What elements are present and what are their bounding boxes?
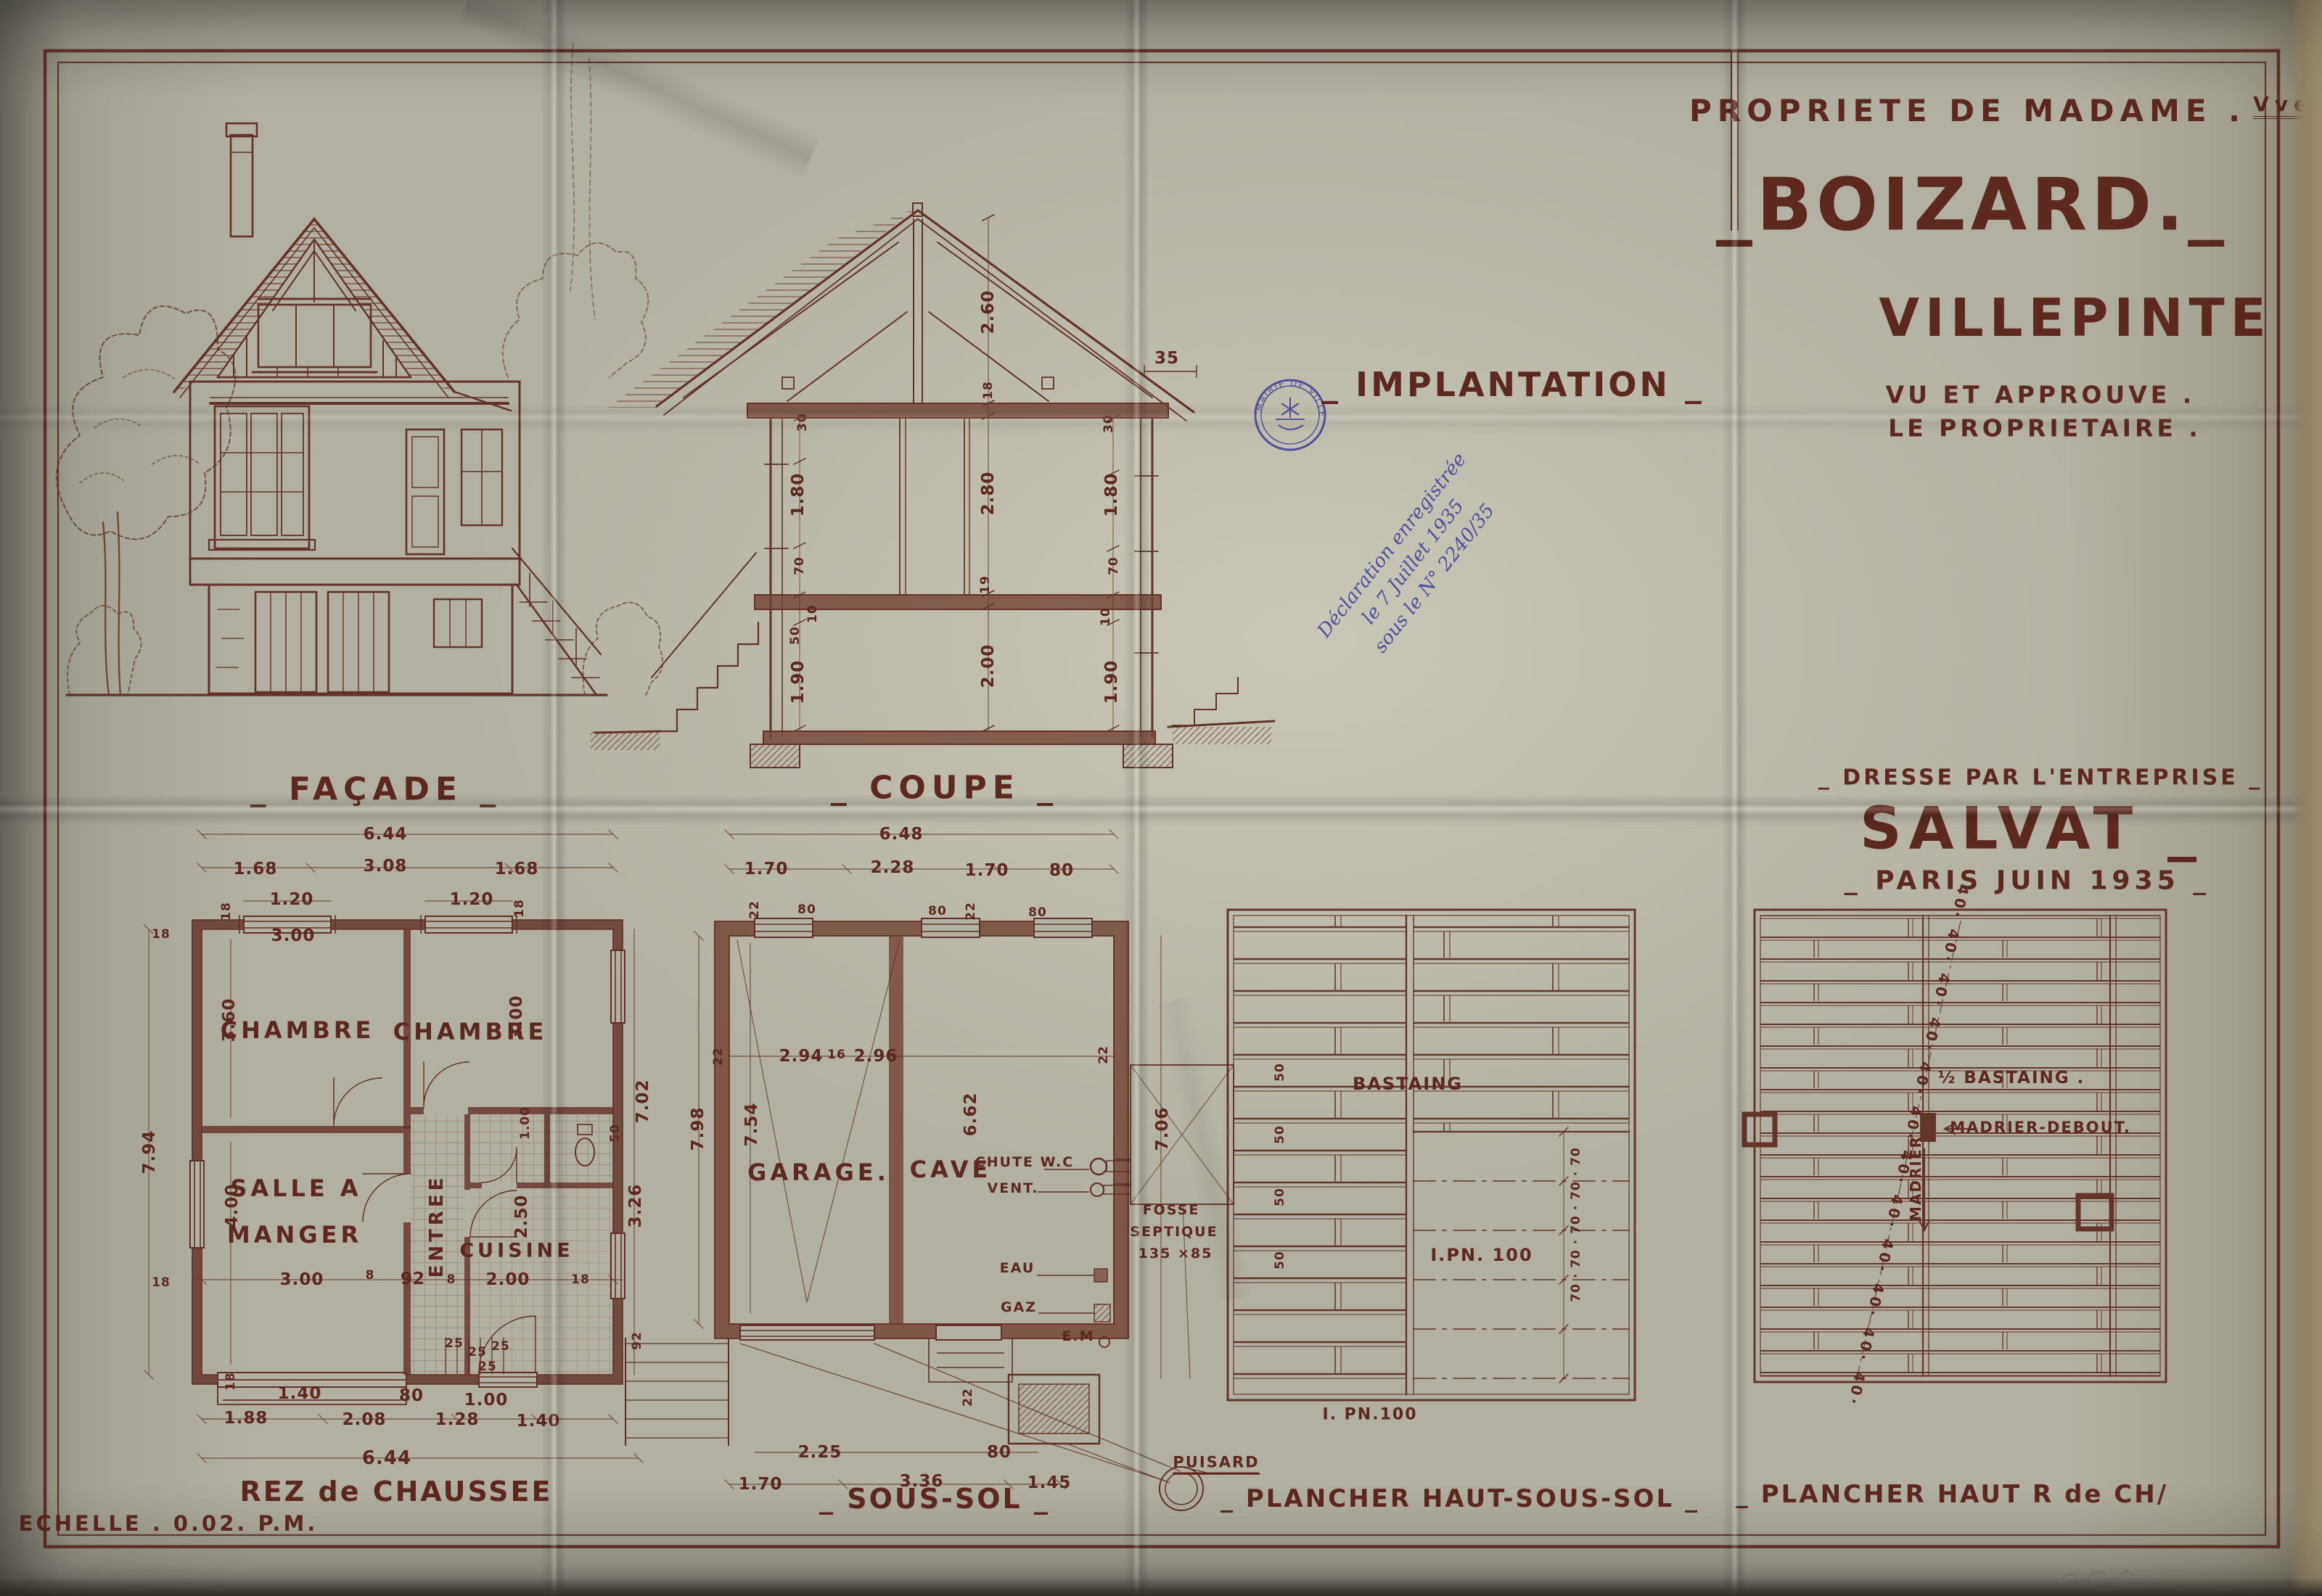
dim-label: 1.90	[1102, 660, 1121, 704]
room-label-cuisine: CUISINE	[459, 1240, 573, 1262]
dim-label: 1.70	[744, 860, 789, 879]
dim-label: 18	[512, 899, 527, 918]
dim-label: 18	[152, 1275, 171, 1290]
dim-label: 1.80	[1102, 473, 1121, 517]
anno-em: E.M	[1062, 1328, 1094, 1344]
room-label-garage: GARAGE.	[747, 1159, 890, 1186]
dim-label: 3.00	[507, 995, 526, 1040]
dim-label: 18	[223, 1372, 238, 1391]
anno-eau: EAU	[1000, 1260, 1035, 1276]
anno-chute-wc: CHUTE W.C	[975, 1154, 1074, 1170]
dim-label: 50	[1273, 1188, 1287, 1206]
dim-label: 30	[1101, 414, 1116, 433]
dim-label: 18	[981, 381, 996, 400]
puisard-label: PUISARD	[1173, 1454, 1259, 1475]
room-label-salle2: MANGER	[227, 1221, 362, 1249]
dim-label: 1.80	[789, 473, 808, 517]
firm-name: SALVAT _	[1860, 795, 2204, 863]
dim-label: 2.50	[512, 1195, 531, 1239]
dim-label: 7.54	[742, 1103, 761, 1147]
dim-label: 3.08	[364, 857, 408, 876]
dim-label: 2.08	[342, 1410, 387, 1429]
dim-label: 92	[630, 1331, 644, 1350]
anno-ipn-center: I.PN. 100	[1430, 1245, 1533, 1265]
dim-label: 3.00	[280, 1270, 324, 1289]
room-label-entree: ENTREE	[426, 1175, 448, 1278]
dim-label: 3.36	[900, 1472, 944, 1491]
dim-label: 1.00	[464, 1391, 509, 1410]
scale-note: ECHELLE . 0.02. P.M.	[19, 1511, 319, 1536]
dim-label: 80	[797, 902, 816, 917]
firm-line1: _ DRESSE PAR L'ENTREPRISE _	[1818, 765, 2263, 791]
anno-half-bastaing: ½ BASTAING .	[1938, 1069, 2085, 1087]
dim-label: 80	[1049, 861, 1074, 880]
property-title-line1: PROPRIETE DE MADAME .Vve	[1689, 92, 2313, 128]
sheet-edge-bottom	[0, 1577, 2322, 1596]
dim-label: 50	[788, 626, 803, 645]
dim-label: 50	[608, 1124, 623, 1143]
dim-label: 22	[961, 1388, 975, 1407]
rez-title: REZ de CHAUSSEE	[240, 1476, 553, 1507]
dim-label: 1.70	[965, 861, 1009, 880]
blueprint-sheet: MAIRIE DE VILLEPINTE PROPRIETE DE MADAME…	[0, 0, 2322, 1596]
dim-label: 18	[152, 927, 171, 942]
dim-label: 18	[571, 1272, 590, 1287]
dim-label: 22	[964, 902, 978, 921]
approval-line2: LE PROPRIETAIRE .	[1888, 414, 2202, 443]
dim-label: 80	[399, 1386, 424, 1405]
room-label-chambre1: CHAMBRE	[221, 1016, 375, 1044]
plancher1-title: _ PLANCHER HAUT-SOUS-SOL _	[1221, 1484, 1699, 1513]
dim-label: 10	[1099, 607, 1113, 626]
anno-fosse2: SEPTIQUE	[1130, 1224, 1218, 1240]
dim-label: 3.00	[271, 926, 316, 945]
property-city: VILLEPINTE	[1879, 287, 2272, 348]
dim-label: 4.00	[223, 1184, 242, 1228]
dim-label: 30	[795, 413, 810, 432]
firm-date: _ PARIS JUIN 1935 _	[1845, 866, 2210, 896]
dim-label: 92	[401, 1270, 425, 1288]
dim-label: 7.06	[1153, 1107, 1172, 1151]
dim-label: 16	[827, 1048, 846, 1062]
dim-label: 1.88	[224, 1409, 268, 1428]
dim-label: 3.26	[626, 1184, 645, 1228]
dim-label: 2.96	[854, 1047, 898, 1066]
dim-label: 7.02	[633, 1079, 652, 1124]
dim-label: 2.25	[798, 1443, 842, 1462]
dim-label: 1.70	[739, 1475, 783, 1494]
property-name: _BOIZARD._	[1716, 163, 2228, 247]
dim-label: 1.40	[517, 1412, 561, 1431]
dim-label: 6.44	[362, 1447, 411, 1469]
dim-label: 8	[366, 1268, 375, 1283]
dim-label: 7.98	[689, 1107, 707, 1151]
dim-label: 3.60	[220, 998, 239, 1042]
dim-label: 2.00	[979, 644, 998, 688]
note-line2: le 7 Juillet 1935	[1333, 464, 1494, 660]
coupe-title: _ COUPE _	[831, 770, 1059, 807]
dim-label: 70	[1107, 556, 1121, 575]
dim-label: 7.94	[140, 1130, 159, 1175]
dim-label: 2.28	[871, 858, 915, 877]
dim-label: 2.00	[486, 1270, 530, 1289]
dim-label: 1.28	[435, 1410, 480, 1429]
dim-label: 50	[1273, 1063, 1287, 1082]
dim-label: 1.68	[234, 860, 278, 879]
dim-label: 2.94	[779, 1047, 824, 1066]
dim-label: 25	[478, 1360, 497, 1374]
dim-label: 1.68	[495, 860, 539, 879]
dim-label: 1.40	[278, 1384, 322, 1403]
registration-note: Déclaration enregistrée le 7 Juillet 193…	[1312, 448, 1516, 677]
dim-label: 50	[1273, 1251, 1287, 1270]
dim-label: 25	[468, 1345, 487, 1360]
dim-label: 25	[491, 1339, 510, 1354]
dim-label: 22	[711, 1047, 726, 1066]
anno-vent: VENT.	[988, 1180, 1039, 1196]
anno-madrier-debout: MADRIER-DEBOUT.	[1950, 1119, 2131, 1136]
dim-label: 80	[1028, 905, 1047, 920]
anno-gaz: GAZ	[1001, 1299, 1037, 1315]
dim-label: 1.00	[518, 1106, 533, 1140]
anno-fosse3: 135 ×85	[1139, 1246, 1213, 1262]
facade-title: _ FAÇADE _	[250, 771, 502, 808]
dim-label: 25	[445, 1336, 464, 1351]
dim-label: 50	[1273, 1125, 1287, 1144]
dim-label: 22	[747, 900, 762, 919]
dim-label: 18	[219, 902, 234, 921]
dim-label: 1.20	[270, 890, 314, 909]
dim-label: 1.20	[450, 890, 494, 909]
dim-label: 80	[987, 1443, 1012, 1462]
dim-label: 22	[1096, 1045, 1111, 1064]
dim-label: 80	[928, 904, 947, 918]
dim-label: 70	[792, 556, 807, 575]
approval-line1: VU ET APPROUVE .	[1886, 381, 2196, 409]
anno-fosse1: FOSSE	[1143, 1202, 1200, 1218]
dim-label: 70 · 70 · 70 · 70 · 70	[1569, 1147, 1583, 1301]
room-label-salle1: SALLE A	[230, 1175, 361, 1202]
dim-label: 1.45	[1027, 1473, 1072, 1492]
dim-label: 19	[978, 575, 993, 594]
dim-label: 6.48	[879, 825, 924, 844]
dim-label: 2.60	[979, 290, 998, 334]
text-layer: PROPRIETE DE MADAME .Vve _BOIZARD._ VILL…	[0, 0, 2322, 1596]
dim-label: 2.80	[979, 472, 998, 516]
dim-label: 35	[1154, 349, 1179, 368]
dim-label: 6.44	[364, 825, 408, 844]
sheet-edge-right	[2290, 0, 2322, 1596]
dim-label: 6.62	[961, 1093, 980, 1137]
dim-chain-40: 40· 40· 40· 40· 40· 40· 40· 40· 40· 40· …	[1845, 883, 1973, 1410]
anno-bastaing: BASTAING	[1353, 1074, 1463, 1094]
dim-label: 8	[447, 1272, 456, 1287]
dim-label: 1.90	[789, 660, 808, 704]
implantation-title: _ IMPLANTATION _	[1321, 365, 1704, 404]
anno-ipn-bottom: I. PN.100	[1322, 1406, 1417, 1424]
dim-label: 10	[805, 604, 820, 623]
plancher2-title: _ PLANCHER HAUT R de CH/	[1736, 1480, 2168, 1509]
